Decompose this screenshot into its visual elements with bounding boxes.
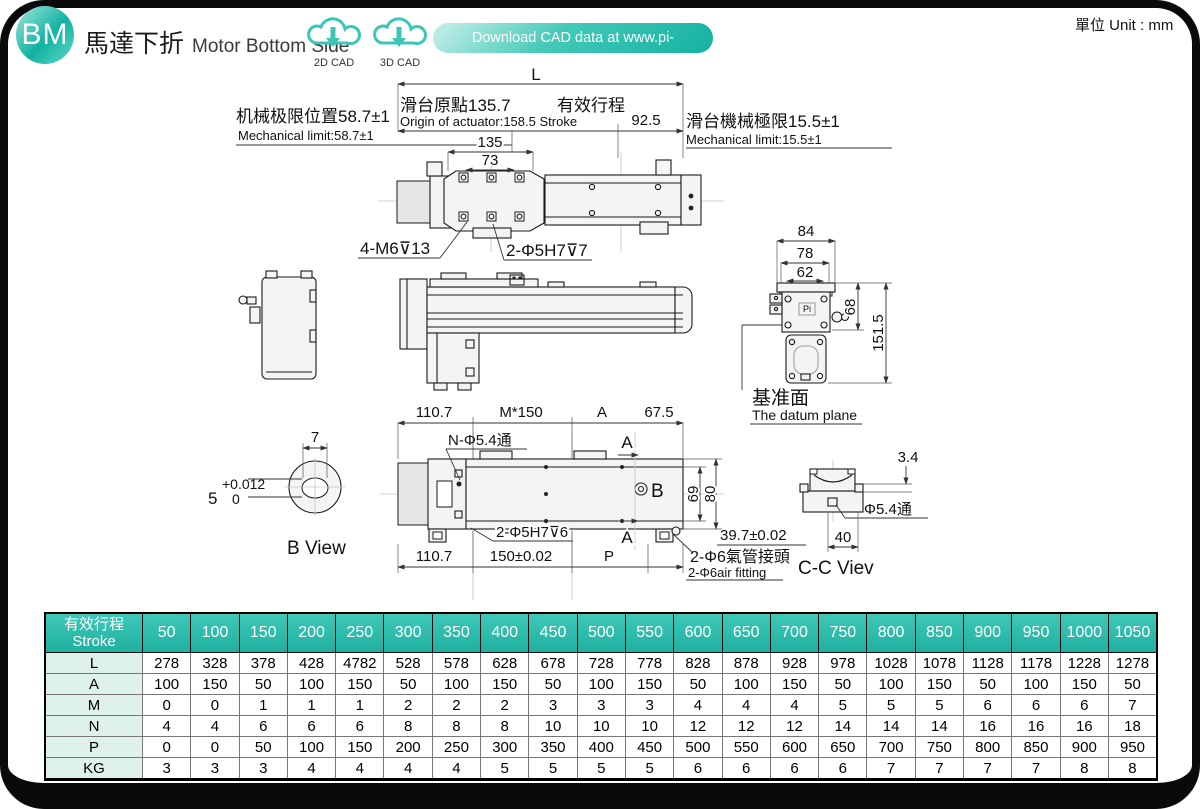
label-N-phi54: N-Φ5.4通 (448, 432, 512, 449)
stroke-col-header: 900 (964, 613, 1012, 653)
table-cell: 678 (529, 653, 577, 674)
table-cell: 4 (384, 758, 432, 780)
label-datum-zh: 基准面 (752, 387, 809, 409)
table-cell: 8 (1108, 758, 1157, 780)
cc-view: 3.4 Φ5.4通 40 C-C Viev (798, 449, 928, 579)
dim-110-7-bottom: 110.7 (416, 548, 452, 565)
table-cell: 8 (432, 716, 480, 737)
dim-84: 84 (798, 223, 815, 240)
table-cell: 100 (287, 737, 335, 758)
table-cell: 150 (625, 674, 673, 695)
table-cell: 6 (722, 758, 770, 780)
table-row: M001112223334445556667 (45, 695, 1157, 716)
table-cell: 400 (577, 737, 625, 758)
unit-label: 單位 Unit : mm (1075, 14, 1173, 35)
table-cell: 8 (481, 716, 529, 737)
table-cell: 1178 (1012, 653, 1060, 674)
table-cell: 6 (819, 758, 867, 780)
table-cell: 2 (481, 695, 529, 716)
table-cell: 50 (239, 674, 287, 695)
label-mech-left-en: Mechanical limit:58.7±1 (238, 128, 374, 143)
stroke-col-header: 450 (529, 613, 577, 653)
table-cell: 3 (577, 695, 625, 716)
table-cell: 12 (674, 716, 722, 737)
cc-view-label: C-C Viev (798, 558, 874, 579)
label-mech-right-zh: 滑台機械極限15.5±1 (686, 112, 840, 131)
table-cell: 50 (384, 674, 432, 695)
stroke-col-header: 600 (674, 613, 722, 653)
section-mark-A-top: A (621, 433, 633, 452)
table-cell: 100 (143, 674, 191, 695)
dim-7: 7 (311, 429, 319, 446)
table-row: A100150501001505010015050100150501001505… (45, 674, 1157, 695)
table-header-row: 有效行程Stroke501001502002503003504004505005… (45, 613, 1157, 653)
table-cell: 328 (191, 653, 239, 674)
table-cell: 500 (674, 737, 722, 758)
label-2-phi5H7-7: 2-Φ5H7⊽7 (506, 241, 588, 260)
table-cell: 3 (529, 695, 577, 716)
label-mech-right-en: Mechanical limit:15.5±1 (686, 132, 822, 147)
table-cell: 1128 (964, 653, 1012, 674)
row-label: P (45, 737, 143, 758)
table-cell: 428 (287, 653, 335, 674)
dim-3-4: 3.4 (898, 449, 919, 466)
table-cell: 4782 (336, 653, 384, 674)
table-cell: 100 (287, 674, 335, 695)
stroke-col-header: 150 (239, 613, 287, 653)
table-cell: 978 (819, 653, 867, 674)
table-cell: 378 (239, 653, 287, 674)
table-row: L278328378428478252857862867872877882887… (45, 653, 1157, 674)
table-cell: 1 (336, 695, 384, 716)
table-cell: 3 (191, 758, 239, 780)
label-datum-en: The datum plane (752, 407, 857, 423)
table-cell: 0 (191, 695, 239, 716)
dim-92-5: 92.5 (631, 112, 660, 129)
table-cell: 528 (384, 653, 432, 674)
stroke-col-header: 850 (915, 613, 963, 653)
stroke-spec-table: 有效行程Stroke501001502002503003504004505005… (44, 612, 1158, 781)
table-cell: 14 (867, 716, 915, 737)
stroke-col-header: 350 (432, 613, 480, 653)
table-cell: 1 (239, 695, 287, 716)
table-cell: 878 (722, 653, 770, 674)
table-cell: 5 (625, 758, 673, 780)
table-cell: 7 (964, 758, 1012, 780)
table-cell: 4 (432, 758, 480, 780)
table-cell: 150 (191, 674, 239, 695)
dim-135: 135 (477, 134, 502, 151)
stroke-col-header: 200 (287, 613, 335, 653)
label-air-en: 2-Φ6air fitting (688, 565, 766, 580)
stroke-col-header: 1050 (1108, 613, 1157, 653)
table-cell: 150 (336, 674, 384, 695)
table-cell: 278 (143, 653, 191, 674)
label-origin-en: Origin of actuator:158.5 Stroke (400, 114, 577, 129)
table-cell: 300 (481, 737, 529, 758)
table-cell: 10 (529, 716, 577, 737)
table-cell: 3 (143, 758, 191, 780)
stroke-col-header: 1000 (1060, 613, 1108, 653)
table-cell: 8 (1060, 758, 1108, 780)
dim-A-span: A (597, 404, 607, 421)
stroke-col-header: 750 (819, 613, 867, 653)
table-cell: 728 (577, 653, 625, 674)
dim-69: 69 (685, 486, 702, 503)
cloud-download-icon (372, 12, 428, 54)
dim-P: P (604, 548, 614, 565)
table-cell: 4 (287, 758, 335, 780)
technical-drawing: L 滑台原點135.7 有效行程 Origin of actuator:158.… (0, 60, 1200, 612)
table-cell: 928 (770, 653, 818, 674)
table-cell: 7 (915, 758, 963, 780)
label-2-phi5H7-6: 2-Φ5H7⊽6 (496, 524, 568, 541)
table-cell: 100 (867, 674, 915, 695)
dim-39-7: 39.7±0.02 (720, 527, 787, 544)
tolerance-nominal: 5 (208, 489, 217, 508)
table-cell: 750 (915, 737, 963, 758)
table-cell: 700 (867, 737, 915, 758)
row-label: M (45, 695, 143, 716)
bottom-plan-view: B (380, 430, 724, 600)
dim-L: L (531, 65, 540, 84)
b-view-label: B View (287, 538, 346, 559)
stroke-col-header: 100 (191, 613, 239, 653)
table-cell: 4 (770, 695, 818, 716)
dim-110-7-top: 110.7 (416, 404, 452, 421)
table-cell: 50 (1108, 674, 1157, 695)
table-cell: 1228 (1060, 653, 1108, 674)
page-title-zh: 馬達下折 (84, 30, 184, 58)
table-cell: 14 (819, 716, 867, 737)
table-cell: 10 (625, 716, 673, 737)
table-cell: 150 (336, 737, 384, 758)
table-cell: 6 (1060, 695, 1108, 716)
stroke-col-header: 650 (722, 613, 770, 653)
table-cell: 4 (722, 695, 770, 716)
table-cell: 7 (1108, 695, 1157, 716)
table-cell: 5 (577, 758, 625, 780)
table-cell: 828 (674, 653, 722, 674)
dim-68: 68 (842, 299, 859, 316)
tolerance-lower: 0 (232, 491, 240, 507)
table-cell: 200 (384, 737, 432, 758)
table-cell: 4 (336, 758, 384, 780)
row-label: L (45, 653, 143, 674)
table-cell: 0 (143, 737, 191, 758)
table-cell: 50 (819, 674, 867, 695)
top-view-dimensions: L 滑台原點135.7 有效行程 Origin of actuator:158.… (236, 65, 892, 260)
side-elevation-view (400, 273, 692, 390)
stroke-col-header: 950 (1012, 613, 1060, 653)
table-cell: 778 (625, 653, 673, 674)
table-cell: 12 (722, 716, 770, 737)
label-mech-left-zh: 机械极限位置58.7±1 (236, 107, 390, 126)
table-cell: 18 (1108, 716, 1157, 737)
table-cell: 50 (674, 674, 722, 695)
table-cell: 50 (239, 737, 287, 758)
stroke-col-header: 500 (577, 613, 625, 653)
table-cell: 850 (1012, 737, 1060, 758)
table-cell: 350 (529, 737, 577, 758)
label-phi5-4: Φ5.4通 (864, 501, 912, 518)
stroke-col-header: 400 (481, 613, 529, 653)
table-cell: 7 (1012, 758, 1060, 780)
table-cell: 0 (143, 695, 191, 716)
table-cell: 10 (577, 716, 625, 737)
label-origin-zh: 滑台原點135.7 (400, 96, 511, 115)
table-cell: 1278 (1108, 653, 1157, 674)
row-label: A (45, 674, 143, 695)
table-cell: 4 (191, 716, 239, 737)
dim-151-5: 151.5 (870, 314, 887, 352)
dim-62: 62 (797, 264, 814, 281)
table-row: N4466688810101012121214141416161618 (45, 716, 1157, 737)
cross-section-view: Pi (770, 283, 849, 383)
table-cell: 6 (674, 758, 722, 780)
table-cell: 6 (770, 758, 818, 780)
table-cell: 150 (915, 674, 963, 695)
table-cell: 5 (867, 695, 915, 716)
table-cell: 2 (384, 695, 432, 716)
stroke-col-header: 50 (143, 613, 191, 653)
dim-M150: M*150 (499, 404, 542, 421)
table-cell: 5 (819, 695, 867, 716)
table-cell: 150 (1060, 674, 1108, 695)
table-cell: 800 (964, 737, 1012, 758)
stroke-col-header: 550 (625, 613, 673, 653)
table-cell: 8 (384, 716, 432, 737)
section-mark-A-bottom: A (621, 528, 633, 547)
table-cell: 628 (481, 653, 529, 674)
label-air-zh: 2-Φ6氣管接頭 (690, 548, 790, 566)
table-cell: 1078 (915, 653, 963, 674)
bm-badge: BM (16, 6, 74, 64)
table-cell: 900 (1060, 737, 1108, 758)
b-view: 7 +0.012 5 0 B View (208, 429, 346, 559)
dim-67-5: 67.5 (644, 404, 673, 421)
table-cell: 578 (432, 653, 480, 674)
stroke-header-cell: 有效行程Stroke (45, 613, 143, 653)
table-cell: 6 (287, 716, 335, 737)
tolerance-upper: +0.012 (222, 476, 265, 492)
table-cell: 250 (432, 737, 480, 758)
table-cell: 600 (770, 737, 818, 758)
table-cell: 100 (722, 674, 770, 695)
stroke-col-header: 250 (336, 613, 384, 653)
row-label: KG (45, 758, 143, 780)
row-label: N (45, 716, 143, 737)
table-cell: 50 (529, 674, 577, 695)
top-plan-view (378, 152, 724, 252)
table-cell: 3 (239, 758, 287, 780)
dim-40: 40 (835, 529, 852, 546)
table-cell: 5 (481, 758, 529, 780)
download-cad-link[interactable]: Download CAD data at www.pi-robot.com.cn (433, 23, 713, 53)
table-cell: 6 (1012, 695, 1060, 716)
table-cell: 1028 (867, 653, 915, 674)
table-cell: 650 (819, 737, 867, 758)
stroke-col-header: 800 (867, 613, 915, 653)
pi-logo: Pi (803, 304, 811, 314)
table-cell: 2 (432, 695, 480, 716)
table-cell: 14 (915, 716, 963, 737)
table-row: KG333444455556666777788 (45, 758, 1157, 780)
table-cell: 7 (867, 758, 915, 780)
table-cell: 150 (770, 674, 818, 695)
table-cell: 4 (143, 716, 191, 737)
dim-150: 150±0.02 (490, 548, 552, 565)
table-cell: 16 (1012, 716, 1060, 737)
table-cell: 1 (287, 695, 335, 716)
table-cell: 5 (529, 758, 577, 780)
table-row: P005010015020025030035040045050055060065… (45, 737, 1157, 758)
table-cell: 6 (336, 716, 384, 737)
table-cell: 100 (432, 674, 480, 695)
table-cell: 550 (722, 737, 770, 758)
table-cell: 3 (625, 695, 673, 716)
label-4-M6: 4-M6⊽13 (360, 239, 430, 258)
table-cell: 950 (1108, 737, 1157, 758)
table-cell: 450 (625, 737, 673, 758)
table-cell: 100 (1012, 674, 1060, 695)
table-cell: 12 (770, 716, 818, 737)
table-cell: 0 (191, 737, 239, 758)
table-cell: 50 (964, 674, 1012, 695)
table-cell: 100 (577, 674, 625, 695)
cloud-download-icon (306, 12, 362, 54)
table-cell: 6 (964, 695, 1012, 716)
table-cell: 16 (964, 716, 1012, 737)
stroke-col-header: 700 (770, 613, 818, 653)
dim-73: 73 (482, 152, 499, 169)
label-stroke-zh: 有效行程 (557, 96, 625, 115)
table-cell: 4 (674, 695, 722, 716)
dim-80: 80 (702, 486, 719, 503)
table-cell: 150 (481, 674, 529, 695)
table-cell: 6 (239, 716, 287, 737)
table-cell: 5 (915, 695, 963, 716)
end-view (239, 271, 316, 379)
b-mark: B (651, 481, 664, 502)
dim-78: 78 (797, 245, 814, 262)
stroke-col-header: 300 (384, 613, 432, 653)
table-body: L278328378428478252857862867872877882887… (45, 653, 1157, 780)
table-cell: 16 (1060, 716, 1108, 737)
